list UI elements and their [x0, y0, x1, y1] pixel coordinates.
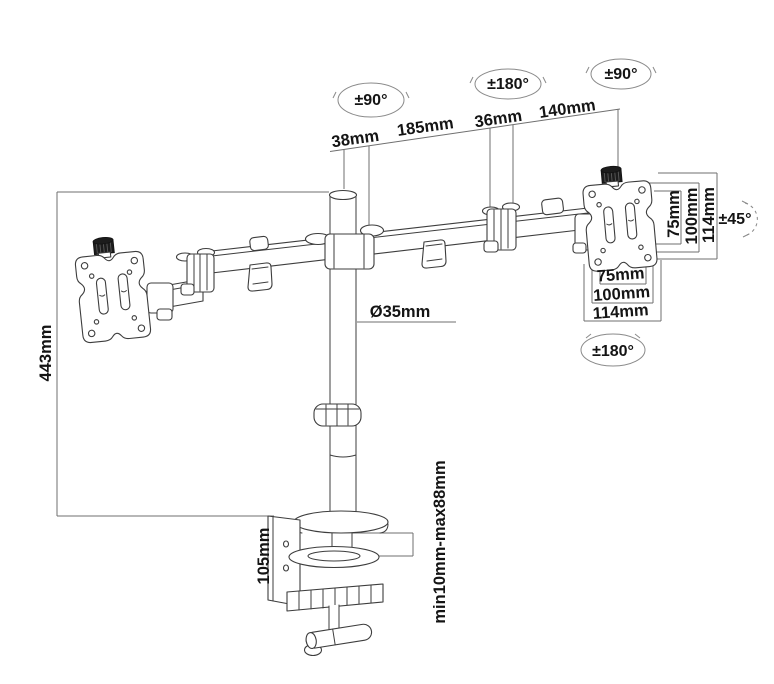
dim-label-185mm: 185mm: [396, 114, 455, 140]
dim-label-vesa-side-100: 100mm: [683, 188, 701, 245]
dim-label-vesa-bottom-75: 75mm: [596, 264, 645, 285]
right-arm-joint: [483, 203, 520, 252]
right-vesa-plate: [581, 163, 658, 272]
dim-label-140mm: 140mm: [538, 96, 597, 122]
dim-label-105mm: 105mm: [255, 528, 273, 585]
dim-label-desk-thickness: min10mm-max88mm: [431, 460, 449, 623]
left-arm-joint: [177, 249, 215, 296]
cable-clip-top-right: [541, 198, 564, 215]
diagram-svg: ±90° ±180° ±90° ±45° ±180° 38mm 185mm 36…: [0, 0, 774, 684]
cable-clip-bottom-left: [248, 263, 272, 291]
dim-label-vesa-side-75: 75mm: [665, 190, 683, 238]
label-rotation-head: ±90°: [605, 66, 638, 83]
dim-label-vesa-bottom-114: 114mm: [592, 301, 649, 323]
dim-label-vesa-side-114: 114mm: [700, 187, 718, 243]
dim-label-36mm: 36mm: [473, 107, 523, 131]
label-rotation-pole: ±90°: [355, 92, 388, 109]
dim-label-443mm: 443mm: [37, 325, 55, 382]
left-vesa-plate: [73, 234, 151, 344]
pole-adjust-collar: [314, 404, 361, 426]
monitor-mount-technical-diagram: ±90° ±180° ±90° ±45° ±180° 38mm 185mm 36…: [0, 0, 774, 684]
dim-label-pole-diameter: Ø35mm: [370, 303, 431, 321]
cable-clip-bottom-right: [422, 240, 446, 268]
label-rotation-vesa: ±180°: [592, 343, 634, 360]
cable-clip-top-left: [249, 236, 268, 251]
dim-label-38mm: 38mm: [330, 127, 380, 151]
label-tilt-head: ±45°: [719, 211, 752, 228]
label-rotation-joint: ±180°: [487, 76, 529, 93]
labels: ±90° ±180° ±90° ±45° ±180° 38mm 185mm 36…: [37, 66, 751, 624]
